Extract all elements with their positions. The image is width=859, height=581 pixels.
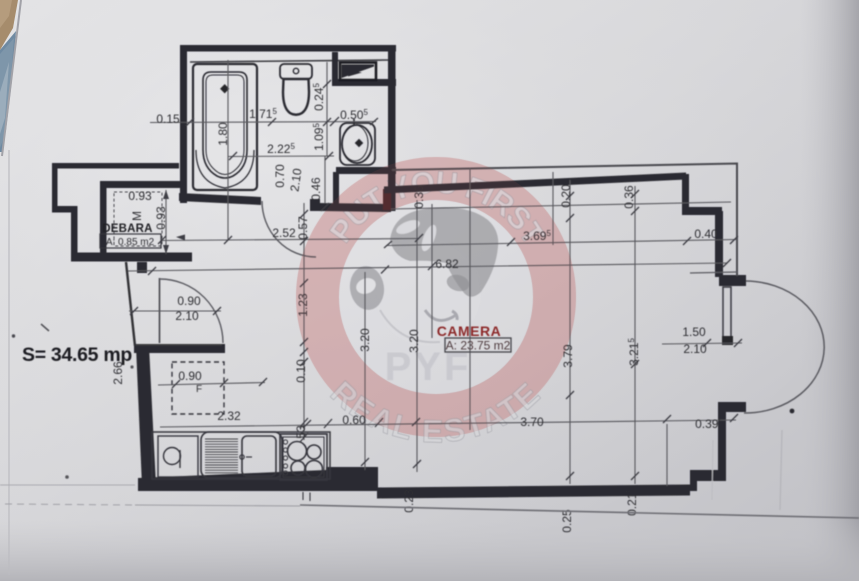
svg-text:0.36: 0.36	[622, 185, 636, 209]
svg-text:CAMERA: CAMERA	[437, 323, 501, 339]
svg-text:DEBARA: DEBARA	[102, 223, 152, 235]
svg-text:F: F	[196, 384, 202, 395]
svg-text:0.93: 0.93	[128, 189, 152, 203]
svg-text:0.15: 0.15	[156, 112, 180, 126]
svg-text:2.10: 2.10	[175, 309, 199, 323]
svg-text:0.57: 0.57	[296, 216, 310, 240]
svg-text:0.46: 0.46	[309, 177, 323, 201]
svg-text:3.70: 3.70	[520, 415, 544, 429]
svg-text:2.10: 2.10	[683, 342, 707, 356]
svg-text:53: 53	[294, 425, 308, 439]
svg-text:0.90: 0.90	[178, 369, 202, 383]
svg-text:A: 23.75 m2: A: 23.75 m2	[446, 339, 511, 353]
svg-text:1.80: 1.80	[216, 122, 230, 146]
svg-text:3.20: 3.20	[407, 329, 421, 353]
svg-text:0.23: 0.23	[402, 489, 416, 513]
svg-text:0.90: 0.90	[177, 294, 201, 308]
svg-text:1.50: 1.50	[682, 325, 706, 339]
svg-text:2.52: 2.52	[272, 226, 296, 240]
svg-text:0.70: 0.70	[273, 164, 287, 188]
svg-text:3.20: 3.20	[358, 328, 372, 352]
svg-text:M: M	[130, 211, 144, 221]
svg-text:2.66: 2.66	[111, 361, 125, 385]
svg-text:A: 0.85 m2: A: 0.85 m2	[106, 237, 155, 248]
svg-text:2.32: 2.32	[217, 409, 241, 423]
svg-text:6.82: 6.82	[435, 257, 459, 271]
svg-text:0.93: 0.93	[154, 206, 168, 230]
svg-text:0.40: 0.40	[694, 227, 718, 241]
svg-text:0.20: 0.20	[559, 184, 573, 208]
svg-text:0.10: 0.10	[294, 359, 308, 383]
svg-text:0.25: 0.25	[560, 509, 574, 533]
